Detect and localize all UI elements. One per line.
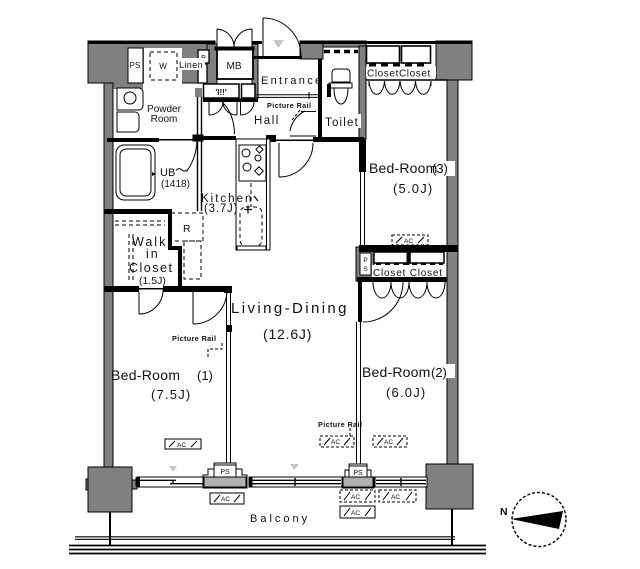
svg-text:AC: AC	[404, 238, 413, 245]
svg-text:R: R	[183, 223, 191, 235]
svg-text:PS: PS	[130, 61, 141, 70]
svg-text:(1): (1)	[197, 368, 213, 383]
svg-text:AC: AC	[384, 439, 393, 446]
svg-text:Bed-Room: Bed-Room	[362, 364, 431, 380]
svg-text:'l!!': 'l!!'	[215, 88, 226, 97]
svg-text:Toilet: Toilet	[325, 117, 359, 129]
svg-text:(1.5J): (1.5J)	[139, 275, 166, 287]
svg-text:Living-Dining: Living-Dining	[231, 300, 349, 317]
svg-text:ClosetCloset: ClosetCloset	[367, 69, 431, 80]
svg-text:Entrance: Entrance	[261, 75, 323, 87]
svg-text:AC: AC	[351, 494, 360, 501]
svg-text:Bed-Room: Bed-Room	[369, 160, 438, 176]
svg-text:in: in	[146, 247, 160, 261]
svg-text:N: N	[500, 506, 508, 518]
svg-text:MB: MB	[227, 61, 242, 72]
svg-text:Balcony: Balcony	[250, 513, 310, 525]
svg-text:AC: AC	[351, 510, 360, 517]
svg-text:PS: PS	[353, 470, 363, 477]
svg-text:Bed-Room: Bed-Room	[111, 367, 180, 383]
svg-text:Picture Rail: Picture Rail	[267, 101, 311, 110]
svg-text:(5.0J): (5.0J)	[393, 181, 433, 196]
svg-text:(6.0J): (6.0J)	[386, 385, 426, 400]
svg-text:(7.5J): (7.5J)	[151, 387, 191, 402]
svg-text:UB: UB	[160, 167, 175, 179]
svg-text:(12.6J): (12.6J)	[263, 326, 312, 342]
svg-text:S: S	[363, 266, 368, 273]
svg-text:PS: PS	[220, 469, 230, 476]
svg-text:(3.7J): (3.7J)	[204, 203, 238, 215]
svg-text:AC: AC	[221, 496, 230, 503]
svg-text:(1418): (1418)	[161, 179, 190, 190]
svg-text:Picture Rail: Picture Rail	[318, 420, 362, 429]
svg-text:AC: AC	[177, 442, 186, 449]
svg-text:AC: AC	[331, 439, 340, 446]
svg-text:Linen: Linen	[179, 60, 203, 70]
svg-text:(2): (2)	[431, 365, 447, 380]
svg-text:(3): (3)	[432, 161, 448, 176]
svg-text:W: W	[159, 62, 167, 71]
svg-text:P: P	[363, 257, 367, 264]
svg-text:Picture Rail: Picture Rail	[172, 334, 216, 343]
svg-text:Closet: Closet	[129, 261, 173, 275]
svg-text:Room: Room	[151, 114, 178, 125]
svg-text:Hall: Hall	[254, 115, 280, 127]
svg-text:AC: AC	[391, 494, 400, 501]
